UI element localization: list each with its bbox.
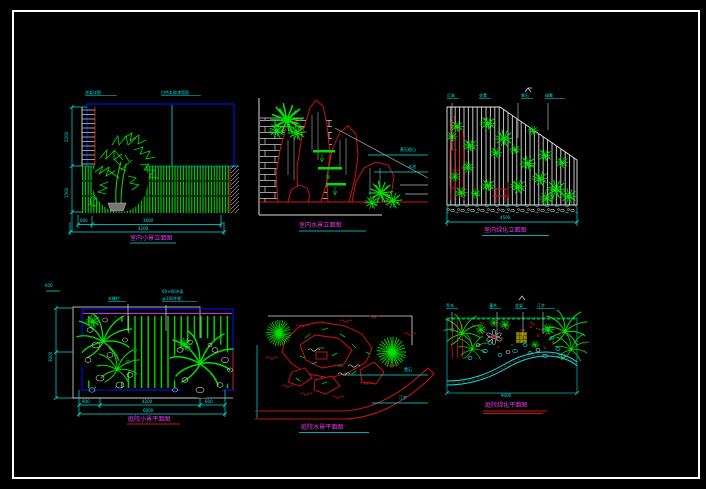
p5-leader-steps: 汀步 <box>399 396 407 400</box>
trellis-ladder <box>82 110 95 164</box>
drawing-canvas <box>0 0 706 489</box>
p1-label-trellis: 花架详图 <box>85 91 117 96</box>
p1-dim-height2: 1500 <box>65 188 69 198</box>
p4-leader-board-2: @100中距 <box>162 297 197 302</box>
p4-dim-1: 900 <box>82 400 90 404</box>
p3-dim-total: 4500 <box>500 216 510 220</box>
p3-label-3: 景石 <box>521 94 533 99</box>
wall-section-hatch <box>231 166 239 213</box>
p1-dim-height1: 2200 <box>65 132 69 142</box>
p4-caption: 庭院小景平面图 <box>128 416 170 422</box>
panel-1-elevation <box>68 104 239 243</box>
p4-corner-label: 600 <box>45 284 53 288</box>
p2-caption: 室内水景立面图 <box>299 222 341 228</box>
p5-leader-rock: 置石 <box>404 368 412 372</box>
pebble-strip <box>447 205 577 213</box>
p1-label-wall: 白色乳胶漆墙面 <box>161 91 201 96</box>
p1-dim-600: 600 <box>80 219 88 223</box>
panel-5-pond-plan <box>255 316 434 433</box>
p4-dim-left: 3000 <box>49 352 53 362</box>
p4-leader-board-1: 60×60木条 <box>162 290 184 294</box>
p3-label-1: 灯具 <box>447 94 459 99</box>
p6-dim-total: 9000 <box>501 394 511 398</box>
p1-dim-3600: 3600 <box>143 219 153 223</box>
p2-leader-rockery: 黄石假山 <box>400 148 416 152</box>
p5-caption: 庭院水景平面图 <box>301 424 343 430</box>
p4-dim-2: 4200 <box>142 400 152 404</box>
p1-dim-total: 4200 <box>138 227 148 231</box>
p3-caption: 室内绿化立面图 <box>484 227 526 233</box>
dimension-left <box>46 291 73 400</box>
p1-caption: 室内小景立面图 <box>130 235 172 241</box>
p6-caption: 庭院绿化平面图 <box>485 402 527 408</box>
p4-dim-3: 600 <box>205 400 213 404</box>
p2-leader-pool: 水池 <box>408 165 416 169</box>
panel-4-deck-plan <box>46 291 233 424</box>
p6-label-3: 花架 <box>515 304 527 309</box>
p6-label-1: 乔木 <box>446 304 458 309</box>
p4-dim-total: 6000 <box>143 409 153 413</box>
panel-2-waterfall-elevation <box>259 98 428 231</box>
p4-leader-fence: 木栅栏 <box>108 297 126 302</box>
p3-label-2: 坐凳 <box>479 94 491 99</box>
cad-sheet: 花架详图 白色乳胶漆墙面 600 3600 4200 2200 1500 室内小… <box>0 0 706 489</box>
planter-pot <box>108 203 126 211</box>
p3-label-4: 绿篱 <box>545 94 565 99</box>
p6-label-4: 汀步 <box>537 304 555 309</box>
north-mark-icon <box>519 296 525 300</box>
garden-path <box>255 368 434 419</box>
section-mark-icon <box>525 88 532 92</box>
p6-label-2: 灌木 <box>489 304 501 309</box>
caption-underline <box>483 411 547 414</box>
panel-3-trellis-elevation <box>445 88 579 236</box>
pavilion-grid <box>516 330 527 343</box>
panel-6-planting-plan <box>444 296 589 414</box>
rock-cluster <box>282 322 384 394</box>
